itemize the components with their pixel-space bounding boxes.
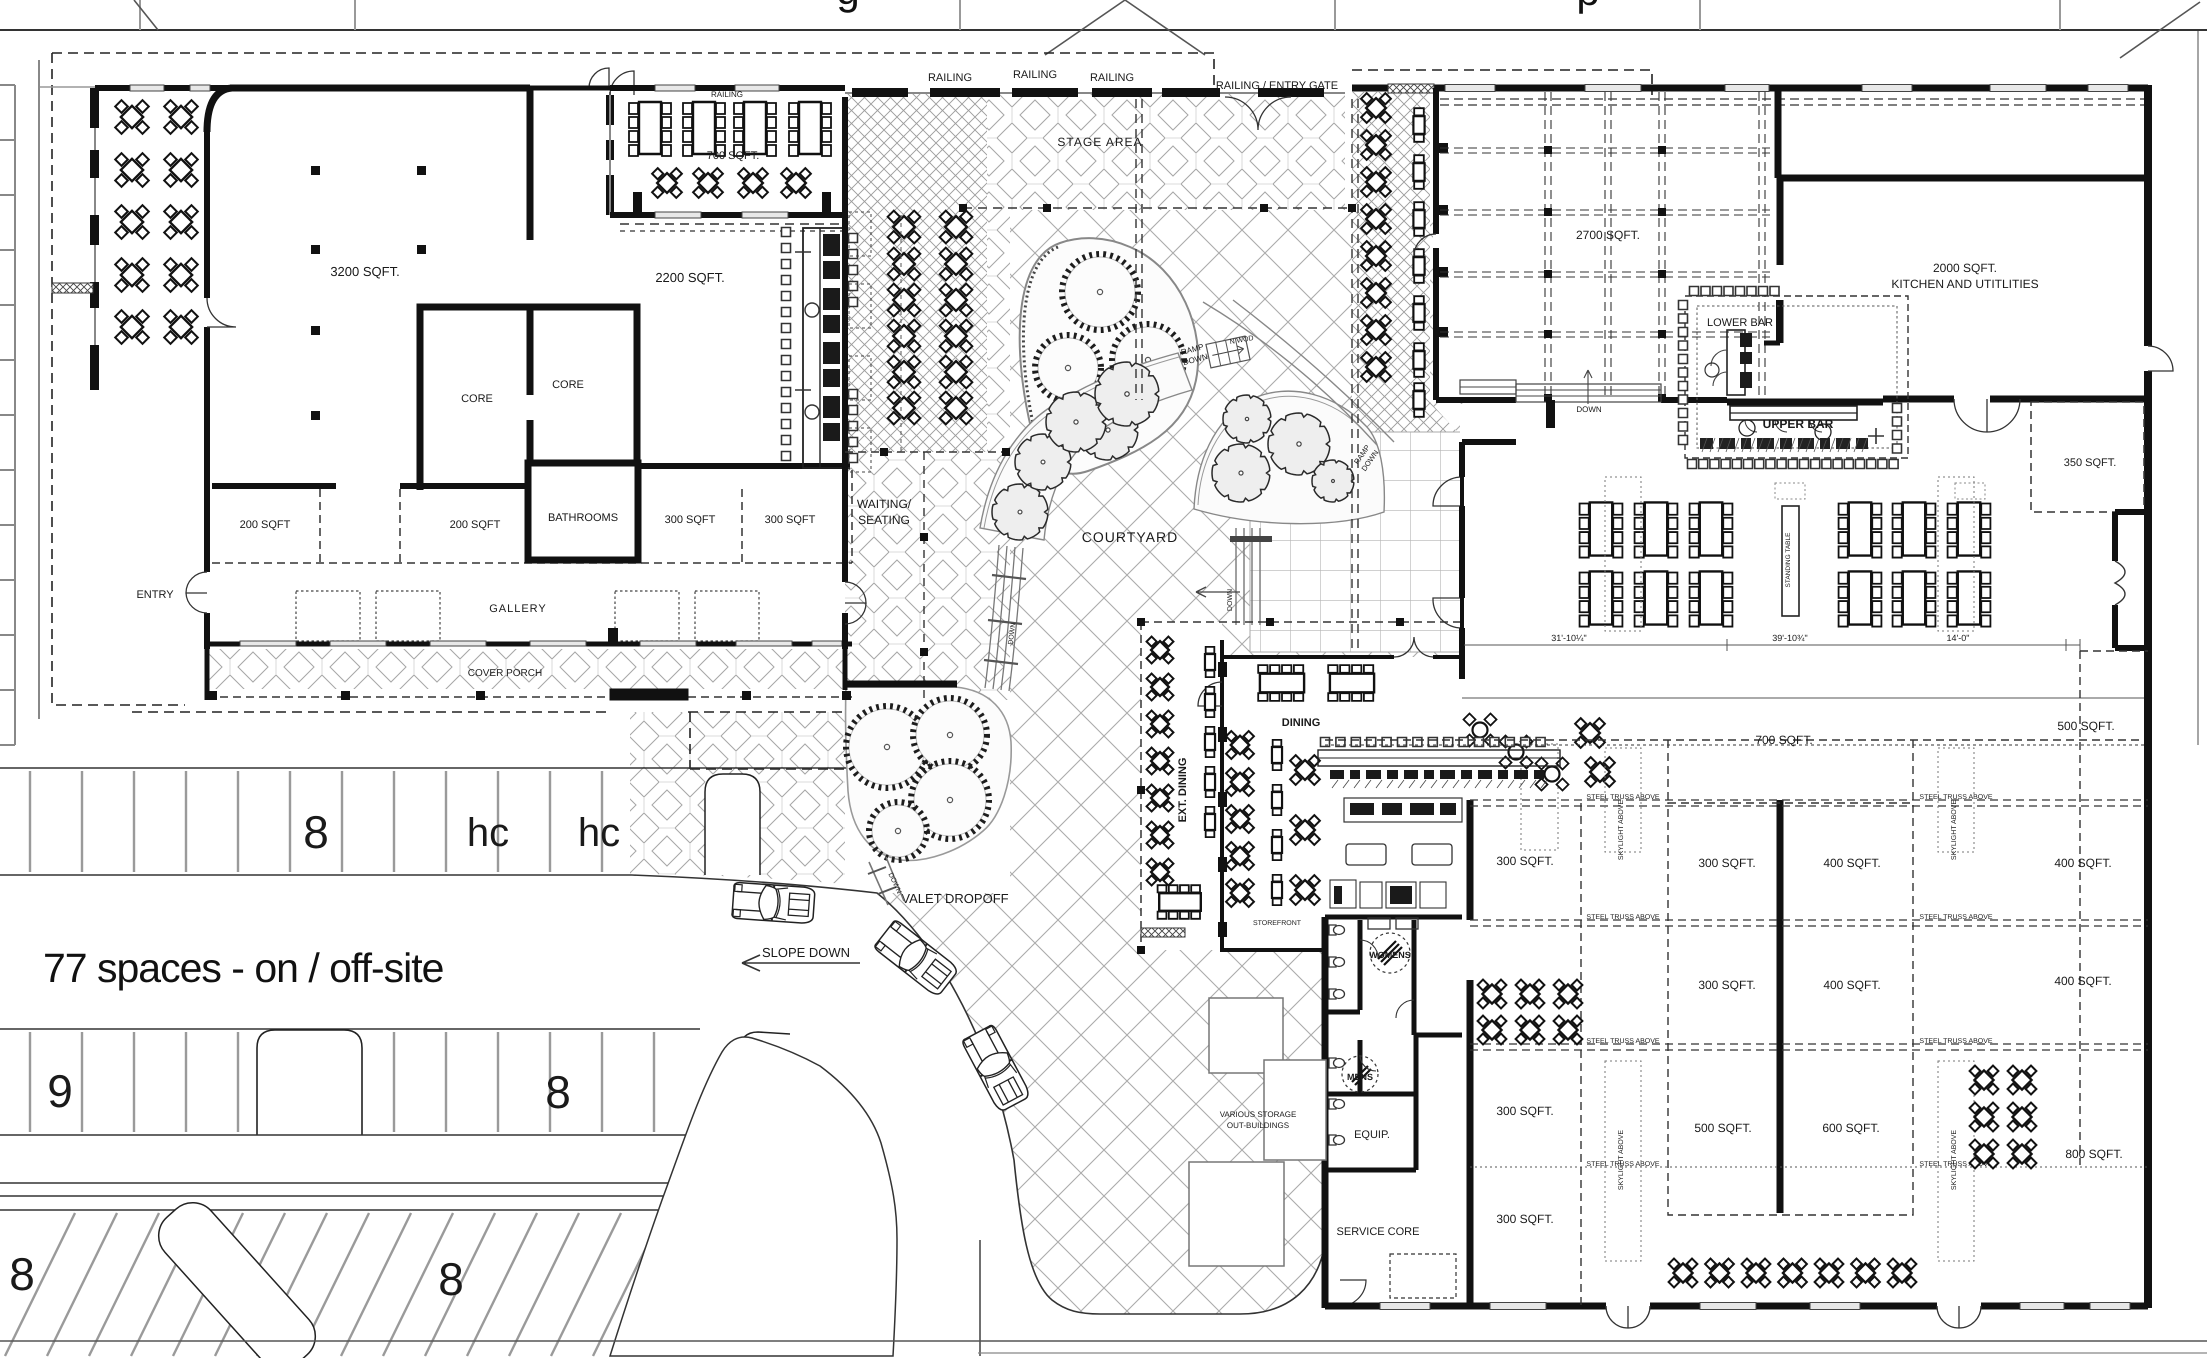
svg-text:WAITING/: WAITING/	[857, 497, 912, 511]
svg-text:400 SQFT.: 400 SQFT.	[1823, 978, 1880, 992]
svg-text:600 SQFT.: 600 SQFT.	[1822, 1121, 1879, 1135]
svg-text:8: 8	[303, 806, 329, 858]
svg-text:EXT. DINING: EXT. DINING	[1177, 758, 1189, 823]
svg-text:SLOPE DOWN: SLOPE DOWN	[762, 945, 850, 960]
svg-text:hc: hc	[467, 811, 509, 855]
svg-text:COVER PORCH: COVER PORCH	[468, 668, 542, 679]
svg-text:CORE: CORE	[552, 379, 584, 391]
svg-text:EQUIP.: EQUIP.	[1354, 1129, 1390, 1141]
svg-text:STEEL TRUSS ABOVE: STEEL TRUSS ABOVE	[1586, 1038, 1659, 1045]
svg-text:STEEL TRUSS ABOVE: STEEL TRUSS ABOVE	[1586, 914, 1659, 921]
svg-text:WOMENS: WOMENS	[1369, 950, 1411, 960]
svg-text:8: 8	[545, 1066, 571, 1118]
svg-text:SKYLIGHT ABOVE: SKYLIGHT ABOVE	[1618, 1130, 1625, 1191]
svg-text:350 SQFT.: 350 SQFT.	[2064, 457, 2117, 469]
svg-text:RAILING: RAILING	[1090, 72, 1134, 84]
svg-text:RAILING: RAILING	[1013, 69, 1057, 81]
svg-text:DOWN: DOWN	[1227, 589, 1234, 611]
svg-text:STOREFRONT: STOREFRONT	[1253, 920, 1302, 927]
svg-text:800 SQFT.: 800 SQFT.	[2065, 1147, 2122, 1161]
svg-text:3200 SQFT.: 3200 SQFT.	[330, 264, 399, 279]
svg-text:RAILING / ENTRY GATE: RAILING / ENTRY GATE	[1216, 80, 1338, 92]
svg-text:DINING: DINING	[1282, 717, 1321, 729]
svg-text:2000 SQFT.: 2000 SQFT.	[1933, 261, 1997, 275]
svg-text:31'-10¼": 31'-10¼"	[1551, 633, 1586, 643]
svg-text:77 spaces - on / off-site: 77 spaces - on / off-site	[43, 945, 443, 991]
svg-text:400 SQFT.: 400 SQFT.	[2054, 974, 2111, 988]
svg-text:CORE: CORE	[461, 393, 493, 405]
svg-text:GALLERY: GALLERY	[489, 603, 547, 615]
svg-text:STEEL TRUSS ABOVE: STEEL TRUSS ABOVE	[1919, 914, 1992, 921]
svg-text:p: p	[1576, 0, 1599, 14]
svg-text:SKYLIGHT ABOVE: SKYLIGHT ABOVE	[1618, 800, 1625, 861]
svg-text:VALET DROPOFF: VALET DROPOFF	[901, 891, 1008, 906]
svg-text:14'-0": 14'-0"	[1947, 633, 1970, 643]
svg-text:8: 8	[9, 1248, 35, 1300]
svg-text:hc: hc	[578, 811, 620, 855]
svg-text:RAILING: RAILING	[928, 72, 972, 84]
svg-text:700 SQFT.: 700 SQFT.	[707, 150, 760, 162]
svg-text:500 SQFT.: 500 SQFT.	[2057, 719, 2114, 733]
svg-text:8: 8	[438, 1253, 464, 1305]
svg-text:DOWN: DOWN	[1576, 405, 1602, 414]
svg-text:200 SQFT: 200 SQFT	[240, 519, 291, 531]
svg-text:g: g	[836, 0, 859, 13]
svg-text:700 SQFT.: 700 SQFT.	[1755, 733, 1812, 747]
svg-text:500 SQFT.: 500 SQFT.	[1694, 1121, 1751, 1135]
svg-text:400 SQFT.: 400 SQFT.	[1823, 856, 1880, 870]
svg-text:UPPER BAR: UPPER BAR	[1763, 417, 1834, 431]
svg-text:COURTYARD: COURTYARD	[1082, 529, 1178, 545]
svg-text:SKYLIGHT ABOVE: SKYLIGHT ABOVE	[1951, 800, 1958, 861]
svg-text:SERVICE CORE: SERVICE CORE	[1337, 1226, 1420, 1238]
svg-text:300 SQFT.: 300 SQFT.	[1698, 978, 1755, 992]
svg-text:SKYLIGHT ABOVE: SKYLIGHT ABOVE	[1951, 1130, 1958, 1191]
svg-text:VARIOUS STORAGE: VARIOUS STORAGE	[1220, 1110, 1297, 1119]
svg-text:2200 SQFT.: 2200 SQFT.	[655, 270, 724, 285]
svg-text:KITCHEN AND UTITLITIES: KITCHEN AND UTITLITIES	[1891, 277, 2038, 291]
svg-text:400 SQFT.: 400 SQFT.	[2054, 856, 2111, 870]
svg-text:STAGE AREA: STAGE AREA	[1057, 135, 1142, 149]
svg-text:300 SQFT.: 300 SQFT.	[1496, 1212, 1553, 1226]
svg-text:2700 SQFT.: 2700 SQFT.	[1576, 228, 1640, 242]
svg-text:BATHROOMS: BATHROOMS	[548, 512, 618, 524]
svg-text:ENTRY: ENTRY	[136, 589, 174, 601]
svg-text:STEEL TRUSS ABOVE: STEEL TRUSS ABOVE	[1919, 1038, 1992, 1045]
svg-text:9: 9	[47, 1065, 73, 1117]
svg-text:LOWER BAR: LOWER BAR	[1707, 317, 1773, 329]
svg-text:SEATING: SEATING	[858, 513, 910, 527]
svg-text:STANDING TABLE: STANDING TABLE	[1785, 532, 1792, 588]
svg-text:300 SQFT: 300 SQFT	[665, 514, 716, 526]
svg-text:300 SQFT: 300 SQFT	[765, 514, 816, 526]
svg-text:OUT-BUILDINGS: OUT-BUILDINGS	[1227, 1121, 1289, 1130]
svg-text:200 SQFT: 200 SQFT	[450, 519, 501, 531]
svg-text:MENS: MENS	[1347, 1072, 1373, 1082]
svg-text:300 SQFT.: 300 SQFT.	[1698, 856, 1755, 870]
svg-text:300 SQFT.: 300 SQFT.	[1496, 1104, 1553, 1118]
svg-text:300 SQFT.: 300 SQFT.	[1496, 854, 1553, 868]
svg-text:39'-10¾": 39'-10¾"	[1772, 633, 1807, 643]
